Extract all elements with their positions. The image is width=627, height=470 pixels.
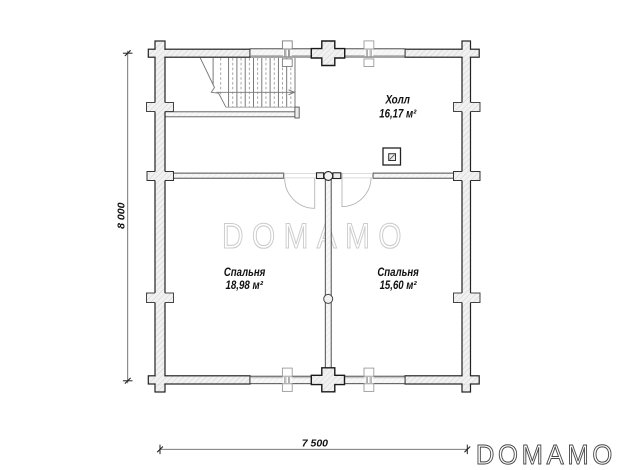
svg-text:15,60 м²: 15,60 м²: [380, 280, 418, 292]
svg-text:Спальня: Спальня: [377, 267, 419, 279]
svg-text:DOMAMO: DOMAMO: [476, 439, 616, 470]
svg-text:18,98 м²: 18,98 м²: [225, 280, 263, 292]
svg-text:7 500: 7 500: [302, 438, 328, 450]
svg-text:16,17 м²: 16,17 м²: [379, 108, 417, 120]
svg-text:Спальня: Спальня: [224, 267, 266, 279]
svg-text:8 000: 8 000: [115, 202, 127, 228]
svg-text:DOMAMO: DOMAMO: [222, 217, 410, 256]
svg-text:Холл: Холл: [385, 95, 410, 107]
